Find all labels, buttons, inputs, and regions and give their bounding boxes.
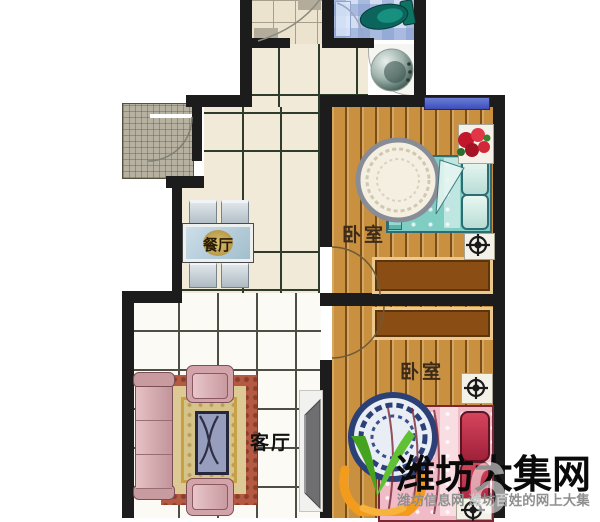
dining-chair [189, 262, 217, 288]
window-bedroom-top [424, 97, 490, 110]
wall-between-bedrooms [320, 293, 505, 306]
pillow [461, 159, 489, 196]
wall-living-left [122, 291, 134, 518]
armchair-seat [192, 484, 228, 510]
dining-chair [189, 200, 217, 226]
sofa [135, 386, 173, 487]
living-room-label: 客厅 [250, 428, 292, 455]
pillow [461, 194, 489, 230]
bedroom-top-label: 卧室 [342, 220, 386, 247]
bedroom-bottom-label: 卧室 [400, 357, 444, 384]
hallway-floor-mid [204, 107, 320, 188]
wardrobe-bedroom-bottom [372, 307, 493, 340]
wall-bedroom-top-left [320, 107, 332, 247]
dining-chair [221, 262, 249, 288]
wall-kitchen-left [240, 0, 252, 107]
coffee-table [195, 411, 229, 475]
floor-plan-canvas: 餐厅 客厅 卧室 卧室 潍坊大集网 6 潍坊信息网 潍坊百姓的网上大集 [0, 0, 600, 522]
wall-under-bath [332, 38, 374, 48]
sofa-cushion [136, 387, 172, 421]
dining-chair [221, 200, 249, 226]
wall-entry-right [192, 103, 202, 161]
ac-unit-box [464, 233, 495, 260]
flower-stand [458, 124, 494, 164]
ac-unit-box [461, 373, 493, 404]
entry-door-leaf [150, 114, 192, 118]
bed-teal-fold [444, 158, 460, 228]
bed-teal-sheet-stripe [388, 158, 402, 230]
wall-bath-right [414, 0, 426, 100]
kitchen-gray-tile [298, 0, 321, 10]
armchair-seat [192, 373, 228, 399]
wall-hall-left [172, 184, 182, 294]
sofa-cushion [136, 421, 172, 455]
dining-room-label: 餐厅 [183, 234, 253, 255]
laundry-nook-floor [368, 44, 415, 96]
wardrobe-bedroom-top [372, 257, 493, 294]
tv-stand [299, 390, 323, 512]
sofa-cushion [136, 455, 172, 489]
wall-under-kitchen [252, 38, 290, 48]
watermark-ghost-glyph: 6 [468, 448, 508, 522]
bathroom-glass-door [335, 1, 351, 37]
